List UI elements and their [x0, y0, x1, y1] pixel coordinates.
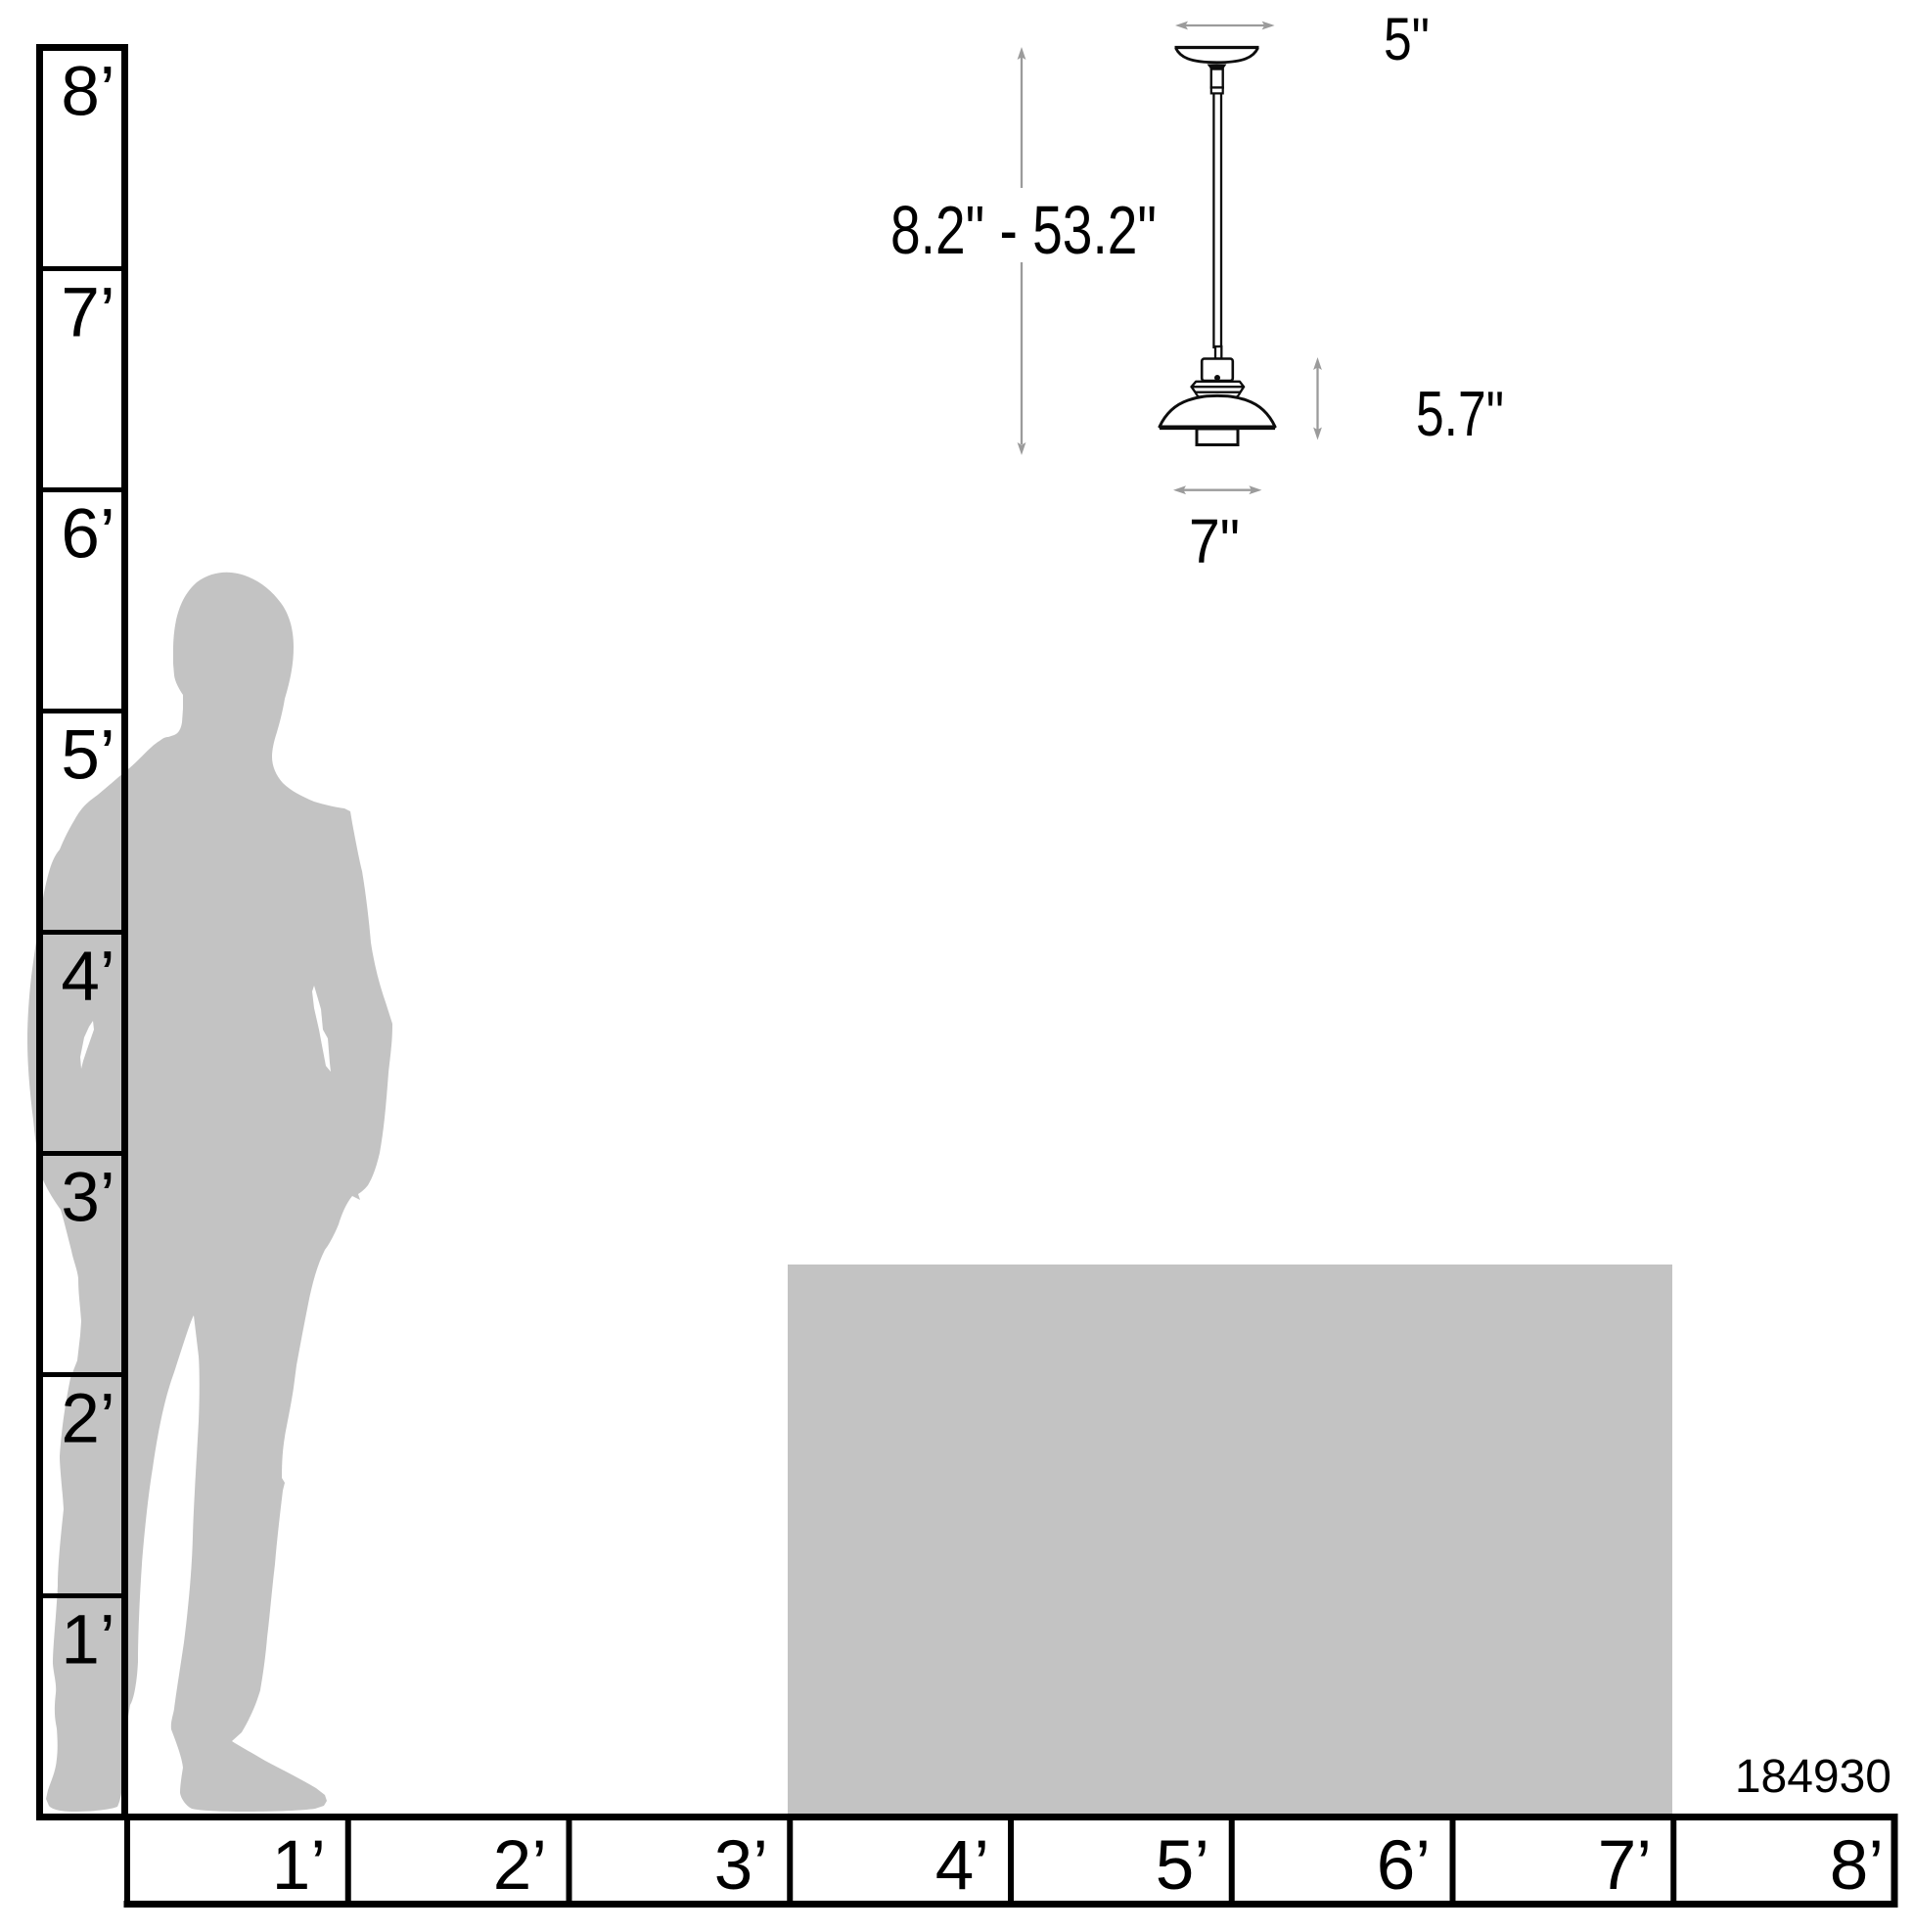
svg-text:1’: 1’: [61, 1602, 114, 1679]
svg-text:3’: 3’: [61, 1160, 114, 1237]
svg-text:5’: 5’: [1156, 1827, 1209, 1905]
svg-text:8’: 8’: [1830, 1827, 1884, 1905]
svg-text:4’: 4’: [935, 1827, 989, 1905]
svg-text:6’: 6’: [61, 496, 114, 574]
svg-text:3’: 3’: [714, 1827, 768, 1905]
svg-text:4’: 4’: [61, 939, 114, 1016]
svg-text:6’: 6’: [1377, 1827, 1431, 1905]
svg-text:184930: 184930: [1735, 1751, 1891, 1803]
svg-text:7’: 7’: [61, 275, 114, 352]
svg-text:2’: 2’: [61, 1381, 114, 1458]
svg-text:7": 7": [1189, 506, 1240, 576]
svg-text:1’: 1’: [272, 1827, 326, 1905]
svg-text:8’: 8’: [61, 54, 114, 131]
svg-text:8.2" - 53.2": 8.2" - 53.2": [890, 192, 1157, 268]
svg-text:5": 5": [1384, 6, 1430, 72]
svg-text:7’: 7’: [1598, 1827, 1652, 1905]
svg-text:5’: 5’: [61, 717, 114, 795]
svg-text:2’: 2’: [493, 1827, 547, 1905]
svg-text:5.7": 5.7": [1416, 378, 1504, 449]
